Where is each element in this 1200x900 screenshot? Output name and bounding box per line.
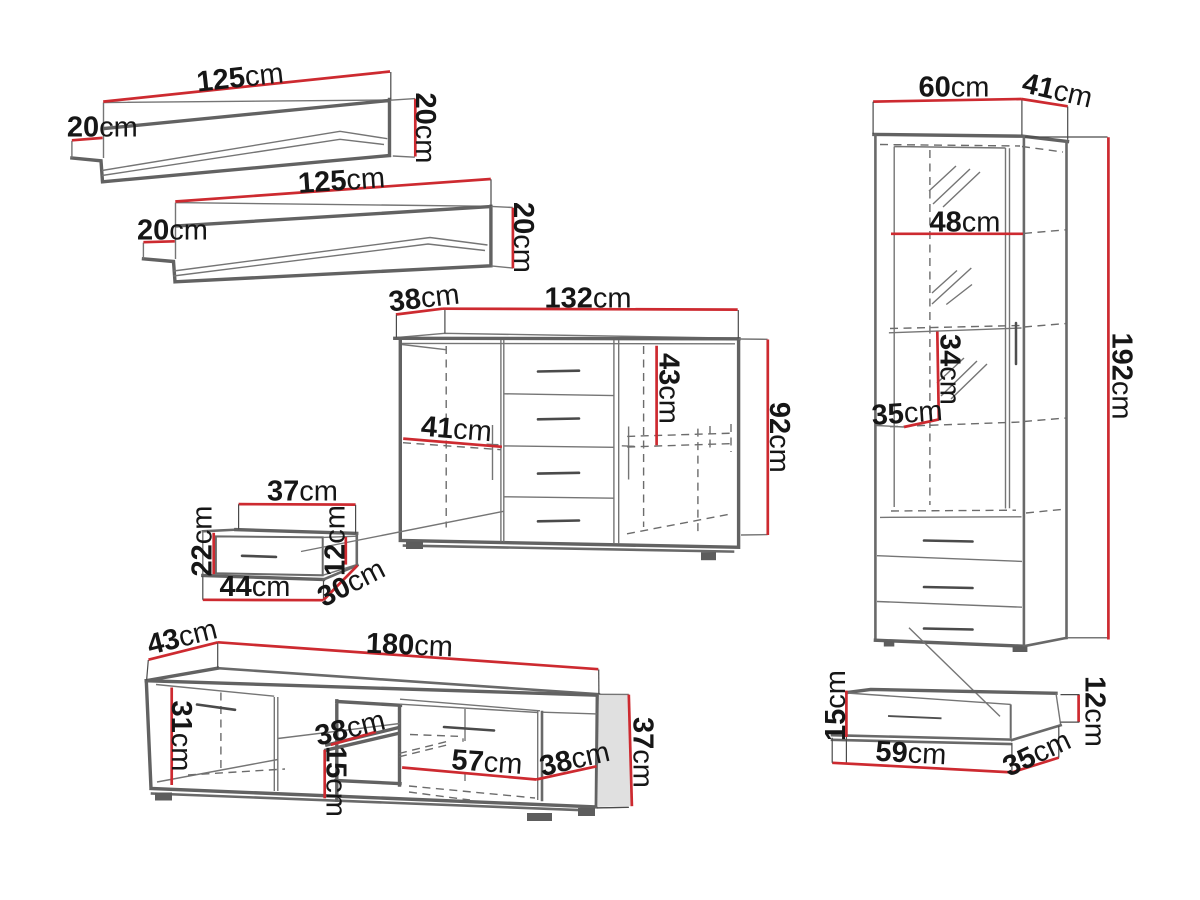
svg-text:31cm: 31cm — [165, 701, 197, 772]
svg-text:15cm: 15cm — [820, 670, 852, 741]
svg-text:44cm: 44cm — [220, 571, 291, 603]
svg-text:20cm: 20cm — [409, 93, 441, 164]
svg-text:180cm: 180cm — [365, 628, 453, 664]
svg-text:35cm: 35cm — [871, 395, 944, 432]
svg-text:60cm: 60cm — [919, 72, 990, 104]
svg-text:20cm: 20cm — [67, 112, 138, 144]
svg-text:57cm: 57cm — [450, 744, 523, 781]
svg-text:22cm: 22cm — [187, 506, 219, 577]
svg-text:15cm: 15cm — [320, 746, 352, 817]
svg-text:37cm: 37cm — [627, 717, 659, 788]
svg-text:125cm: 125cm — [297, 162, 386, 200]
svg-text:43cm: 43cm — [653, 353, 685, 424]
svg-text:12cm: 12cm — [320, 505, 352, 576]
svg-text:92cm: 92cm — [763, 402, 795, 473]
svg-text:48cm: 48cm — [930, 207, 1001, 239]
svg-text:192cm: 192cm — [1106, 332, 1138, 419]
svg-text:20cm: 20cm — [507, 202, 539, 273]
svg-text:41cm: 41cm — [420, 411, 493, 448]
svg-text:132cm: 132cm — [544, 283, 631, 315]
svg-text:20cm: 20cm — [137, 215, 208, 247]
svg-text:59cm: 59cm — [875, 736, 948, 772]
svg-text:12cm: 12cm — [1079, 676, 1111, 747]
svg-text:37cm: 37cm — [267, 476, 338, 508]
